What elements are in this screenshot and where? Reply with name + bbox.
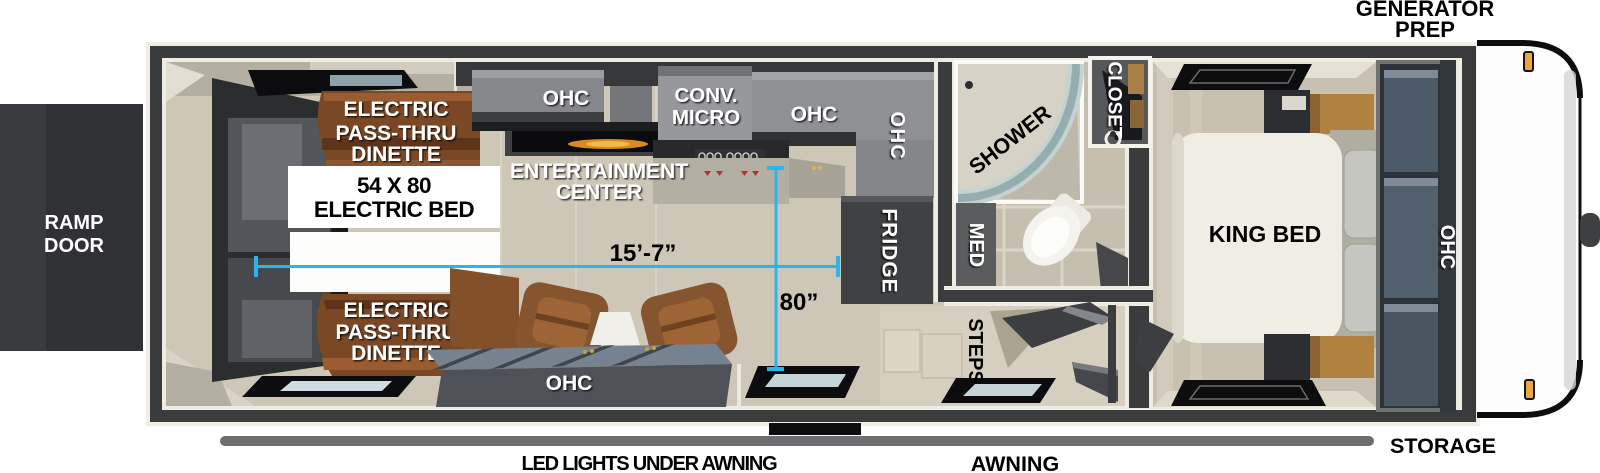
svg-text:CENTER: CENTER xyxy=(556,181,642,204)
svg-text:STORAGE: STORAGE xyxy=(1390,434,1496,458)
svg-text:KING BED: KING BED xyxy=(1209,221,1321,247)
svg-text:LED LIGHTS UNDER AWNING: LED LIGHTS UNDER AWNING xyxy=(522,453,778,473)
svg-text:54 X 80: 54 X 80 xyxy=(357,173,431,198)
svg-text:ENTERTAINMENT: ENTERTAINMENT xyxy=(510,160,688,183)
svg-text:RAMP: RAMP xyxy=(45,212,104,234)
svg-text:PREP: PREP xyxy=(1395,17,1455,42)
svg-text:OHC: OHC xyxy=(543,87,590,110)
svg-text:PASS-THRU: PASS-THRU xyxy=(336,122,457,145)
svg-text:FRIDGE: FRIDGE xyxy=(878,208,901,293)
svg-text:CLOSET: CLOSET xyxy=(1104,61,1125,138)
svg-text:ELECTRIC BED: ELECTRIC BED xyxy=(314,197,475,222)
svg-text:MED: MED xyxy=(965,223,987,267)
svg-text:OHC: OHC xyxy=(886,112,908,161)
svg-text:AWNING: AWNING xyxy=(971,452,1059,473)
svg-text:OHC: OHC xyxy=(546,372,593,395)
svg-text:STEPS: STEPS xyxy=(964,318,986,384)
svg-text:ELECTRIC: ELECTRIC xyxy=(344,299,449,322)
svg-text:ELECTRIC: ELECTRIC xyxy=(344,98,449,121)
svg-text:80”: 80” xyxy=(780,289,819,316)
svg-text:DINETTE: DINETTE xyxy=(351,342,441,365)
svg-text:DINETTE: DINETTE xyxy=(351,143,441,166)
svg-text:DOOR: DOOR xyxy=(44,235,105,257)
svg-text:15’-7”: 15’-7” xyxy=(610,240,677,267)
svg-text:MICRO: MICRO xyxy=(672,106,740,129)
svg-text:OHC: OHC xyxy=(1436,225,1458,269)
svg-text:CONV.: CONV. xyxy=(674,84,737,107)
svg-text:OHC: OHC xyxy=(791,103,838,126)
svg-text:PASS-THRU: PASS-THRU xyxy=(336,321,457,344)
